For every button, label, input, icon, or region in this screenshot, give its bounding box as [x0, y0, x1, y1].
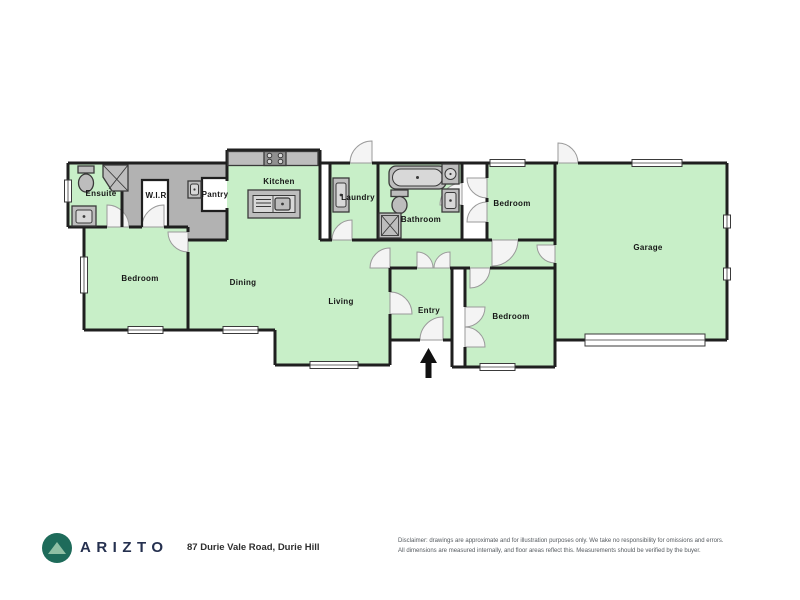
living-dining-floor — [188, 240, 390, 365]
bathtub-icon — [389, 166, 446, 189]
window — [65, 180, 72, 202]
window — [480, 364, 515, 371]
window — [310, 362, 358, 369]
window — [128, 327, 163, 334]
room-label-living: Living — [328, 297, 353, 306]
window — [81, 257, 88, 293]
room-label-kitchen: Kitchen — [263, 177, 294, 186]
round-basin-icon — [442, 164, 459, 184]
window — [632, 160, 682, 167]
ensuite-sink-icon — [72, 206, 96, 226]
vanity-icon — [442, 189, 459, 212]
window — [223, 327, 258, 334]
kitchen-island-icon — [248, 190, 300, 218]
disclaimer-line-1: Disclaimer: drawings are approximate and… — [398, 537, 768, 547]
room-label-ensuite: Ensuite — [86, 189, 117, 198]
brand-name: ARIZTO — [80, 539, 169, 556]
room-label-dining: Dining — [230, 278, 257, 287]
entry-arrow-icon — [420, 348, 437, 378]
window — [724, 215, 731, 228]
disclaimer-text: Disclaimer: drawings are approximate and… — [398, 537, 768, 557]
room-label-entry: Entry — [418, 306, 440, 315]
room-label-pantry: Pantry — [202, 190, 229, 199]
bathroom-toilet-icon — [391, 190, 408, 214]
window — [490, 160, 525, 167]
hall-floor — [383, 240, 555, 268]
window — [724, 268, 731, 280]
door-hall-cupboard-a — [467, 178, 487, 198]
property-address: 87 Durie Vale Road, Durie Hill — [187, 542, 320, 553]
door-garage-exterior — [558, 143, 578, 163]
garage-door — [585, 334, 705, 346]
store-tub-icon — [188, 181, 201, 198]
door-hall-cupboard-b — [467, 202, 487, 222]
shower-icon — [379, 213, 401, 238]
room-label-bathroom: Bathroom — [401, 215, 441, 224]
disclaimer-line-2: All dimensions are measured internally, … — [398, 547, 768, 557]
room-label-bedroom-top-right: Bedroom — [493, 199, 530, 208]
stove-icon — [264, 152, 286, 166]
door-laundry-exterior — [350, 141, 372, 163]
brand-logo-icon — [42, 533, 72, 563]
room-label-bedroom-left: Bedroom — [121, 274, 158, 283]
floor-plan: Ensuite W.I.R Pantry Kitchen Laundry Bat… — [0, 0, 800, 470]
footer: ARIZTO 87 Durie Vale Road, Durie Hill Di… — [0, 531, 800, 571]
room-label-wir: W.I.R — [145, 191, 166, 200]
room-label-bedroom-bottom-right: Bedroom — [492, 312, 529, 321]
room-label-laundry: Laundry — [341, 193, 375, 202]
room-label-garage: Garage — [633, 243, 663, 252]
